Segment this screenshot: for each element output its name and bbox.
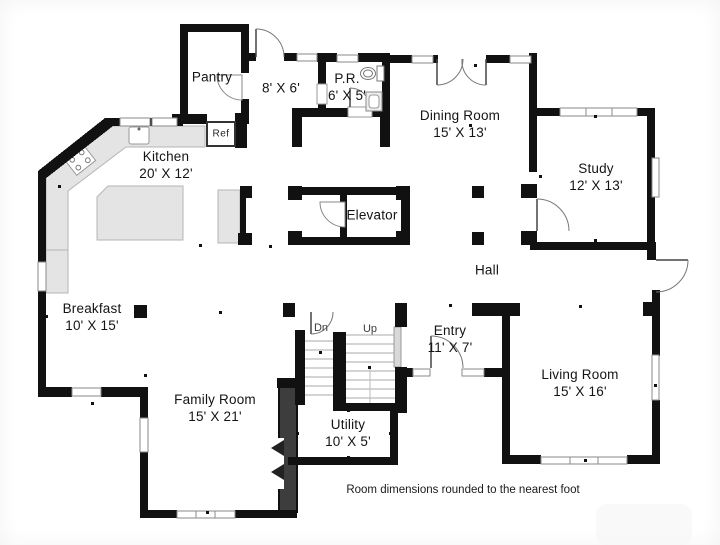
room-label-kitchen: Kitchen20' X 12' — [139, 148, 193, 182]
room-label-entry: Entry11' X 7' — [428, 322, 473, 356]
kitchen-island — [97, 186, 183, 240]
room-label-hall: Hall — [475, 262, 499, 279]
room-label-mudroom: 8' X 6' — [262, 80, 300, 97]
dimensions-footnote: Room dimensions rounded to the nearest f… — [346, 484, 579, 496]
room-label-dining-room: Dining Room15' X 13' — [420, 107, 500, 141]
room-label-pantry: Pantry — [192, 69, 232, 86]
room-label-study: Study12' X 13' — [569, 160, 623, 194]
stairs-up-label: Up — [363, 323, 377, 335]
bathroom-sink-icon — [366, 92, 382, 111]
room-label-living-room: Living Room15' X 16' — [541, 366, 618, 400]
staircase — [305, 335, 395, 403]
fireplace-chimney — [270, 378, 297, 512]
room-label-powder-room: P.R.6' X 5' — [328, 70, 366, 104]
kitchen-sink-icon — [129, 127, 149, 144]
stairs-down-label: Dn — [314, 322, 328, 334]
room-label-utility: Utility10' X 5' — [325, 416, 371, 450]
refrigerator-label: Ref — [212, 129, 229, 140]
floor-plan: Pantry 8' X 6' P.R.6' X 5' Dining Room15… — [0, 0, 720, 545]
stair-railing — [394, 327, 401, 367]
room-label-breakfast: Breakfast10' X 15' — [63, 300, 122, 334]
watermark-blob — [596, 504, 692, 545]
room-label-elevator: Elevator — [346, 207, 397, 224]
room-label-family-room: Family Room15' X 21' — [174, 391, 256, 425]
